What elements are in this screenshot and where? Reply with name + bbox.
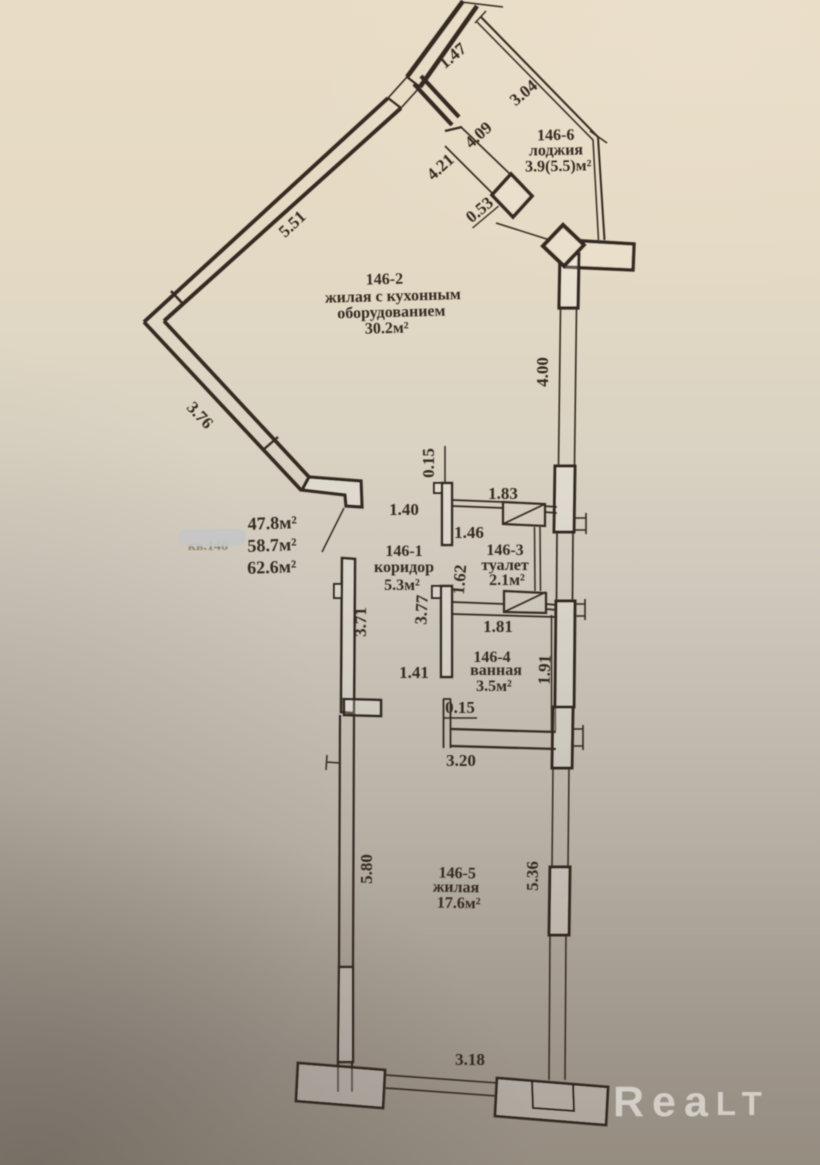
svg-text:58.7м²: 58.7м² [247,534,297,556]
svg-text:ванная: ванная [470,662,522,679]
svg-text:4.09: 4.09 [461,118,496,152]
svg-text:146-1: 146-1 [385,543,422,560]
svg-text:3.71: 3.71 [351,607,370,637]
svg-text:1.40: 1.40 [389,500,419,519]
svg-text:1.81: 1.81 [483,617,513,636]
svg-text:коридор: коридор [374,559,434,576]
svg-text:3.9(5.5)м²: 3.9(5.5)м² [525,157,592,175]
svg-text:30.2м²: 30.2м² [365,320,409,338]
svg-text:1.83: 1.83 [488,484,518,503]
svg-text:5.36: 5.36 [523,861,542,891]
svg-text:0.15: 0.15 [445,698,475,717]
svg-text:3.04: 3.04 [506,76,541,110]
svg-text:3.20: 3.20 [446,751,476,770]
svg-text:4.21: 4.21 [423,150,458,184]
svg-text:3.76: 3.76 [183,398,217,433]
svg-text:3.5м²: 3.5м² [476,678,512,695]
svg-text:ReaLT: ReaLT [613,1078,770,1126]
svg-text:2.1м²: 2.1м² [489,572,525,589]
svg-text:3.77: 3.77 [411,594,432,625]
svg-text:0.15: 0.15 [419,448,438,478]
svg-text:4.00: 4.00 [533,357,552,387]
svg-text:5.3м²: 5.3м² [384,577,420,594]
svg-text:1.62: 1.62 [449,564,471,595]
svg-text:1.91: 1.91 [534,655,554,685]
svg-text:1.47: 1.47 [435,39,470,73]
svg-text:3.18: 3.18 [455,1050,485,1069]
svg-text:47.8м²: 47.8м² [247,512,297,534]
svg-text:17.6м²: 17.6м² [437,895,481,913]
svg-text:1.46: 1.46 [454,523,484,542]
svg-text:146-2: 146-2 [366,271,404,289]
svg-text:5.80: 5.80 [357,854,376,884]
svg-text:1.41: 1.41 [399,663,429,682]
svg-text:62.6м²: 62.6м² [247,556,297,578]
svg-text:5.51: 5.51 [275,207,310,241]
